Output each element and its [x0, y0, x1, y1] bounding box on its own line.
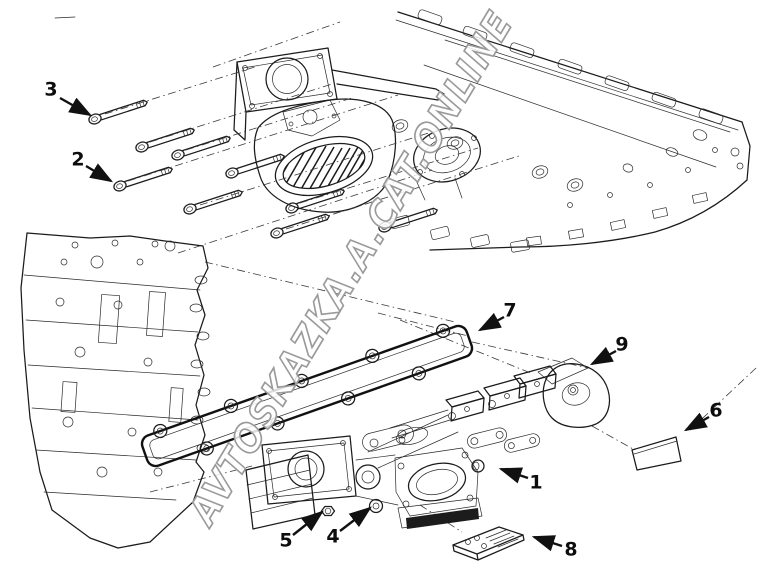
- callout-label-4: 4: [326, 528, 339, 547]
- cover-plate-8-drawing: [453, 527, 524, 560]
- cover-plate-6-drawing: [632, 437, 681, 470]
- callout-label-3: 3: [44, 81, 57, 100]
- engine-block-drawing: [21, 233, 210, 548]
- callout-label-8: 8: [564, 541, 577, 560]
- watermark-text: AVTOSKAZKA.A.CAT.ONLINE: [179, 3, 522, 534]
- callout-label-1: 1: [529, 474, 542, 493]
- callout-label-9: 9: [615, 336, 628, 355]
- callout-label-2: 2: [71, 151, 84, 170]
- callout-label-6: 6: [709, 402, 722, 421]
- callout-label-7: 7: [503, 302, 516, 321]
- callout-arrows: [60, 98, 709, 546]
- exploded-view-line-art: AVTOSKAZKA.A.CAT.ONLINE: [0, 0, 757, 567]
- parts-diagram-canvas: AVTOSKAZKA.A.CAT.ONLINE 1 2 3 4 5 6 7 8 …: [0, 0, 757, 567]
- callout-label-5: 5: [279, 532, 292, 551]
